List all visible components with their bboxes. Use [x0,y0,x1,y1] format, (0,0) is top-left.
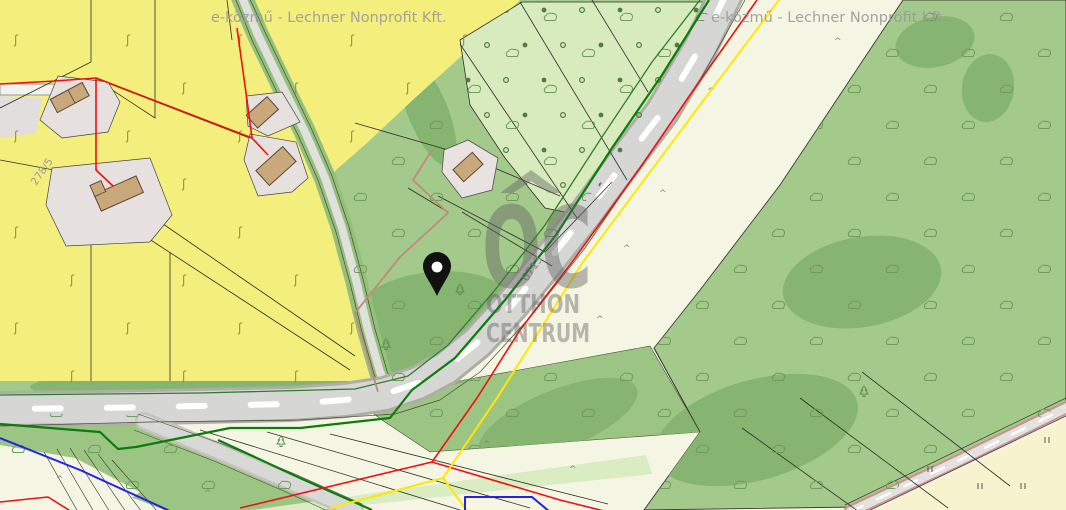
svg-text:^: ^ [204,489,212,499]
svg-text:^: ^ [623,244,631,254]
watermark-line1: OTTHON [486,290,580,320]
svg-text:^: ^ [483,440,491,450]
attribution-left: e-közmű - Lechner Nonprofit Kft. [211,10,447,26]
svg-text:^: ^ [659,189,667,199]
svg-text:^: ^ [56,475,64,485]
svg-text:^: ^ [834,37,842,47]
svg-text:^: ^ [596,315,604,325]
attribution-right: e-közmű - Lechner Nonprofit Kft. [711,10,947,26]
watermark-otthon-centrum: OC OTTHON CENTRUM [482,170,592,349]
pin-hole [432,262,443,273]
watermark-line2: CENTRUM [486,319,590,349]
map-canvas[interactable]: ʃ ʃ [0,0,1066,510]
svg-text:^: ^ [569,465,577,475]
